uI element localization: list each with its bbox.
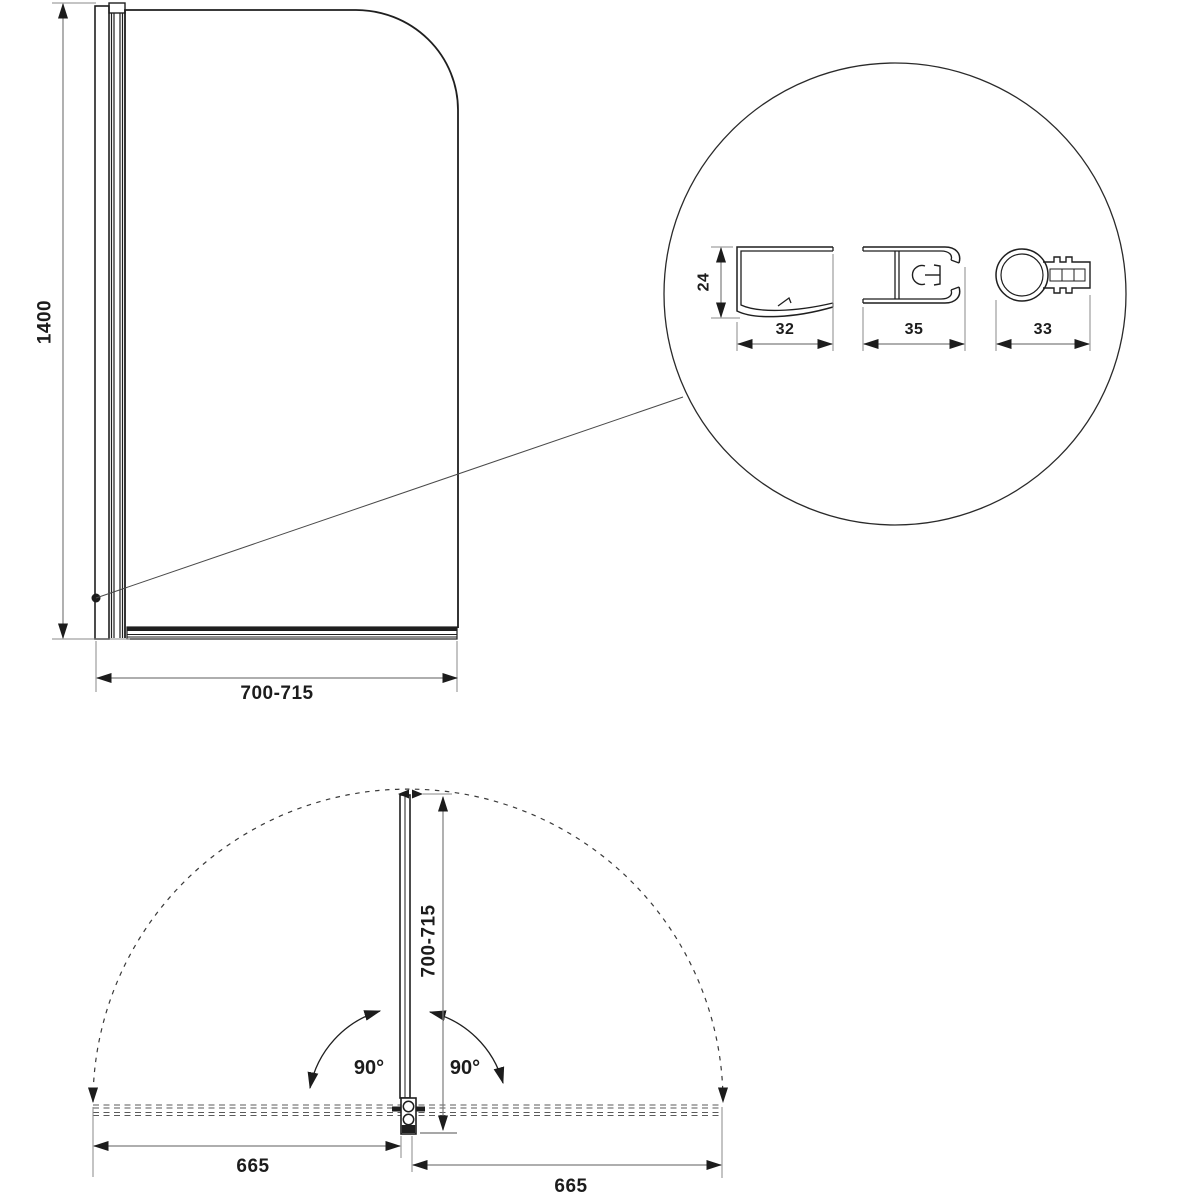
left-span-dimension-label: 665: [236, 1156, 269, 1177]
swing-angle-right-label: 90°: [450, 1057, 480, 1079]
wall-profile-width-label: 32: [776, 321, 795, 338]
bottom-rail: [127, 627, 457, 639]
profile-height-label: 24: [696, 273, 713, 292]
plan-depth-dimension-label: 700-715: [419, 904, 440, 977]
pivot-profile-width-label: 35: [905, 321, 924, 338]
swing-angle-left-label: 90°: [354, 1057, 384, 1079]
right-span-dimension-label: 665: [554, 1176, 587, 1197]
technical-drawing-canvas: 1400 700-715 24 32: [0, 0, 1200, 1200]
front-width-dimension-label: 700-715: [240, 683, 313, 704]
handle-profile-width-label: 33: [1034, 321, 1053, 338]
detail-circle: 24 32: [664, 63, 1126, 525]
bath-screen-drawing: 1400 700-715 24 32: [0, 0, 1200, 1200]
height-dimension-label: 1400: [35, 300, 56, 344]
